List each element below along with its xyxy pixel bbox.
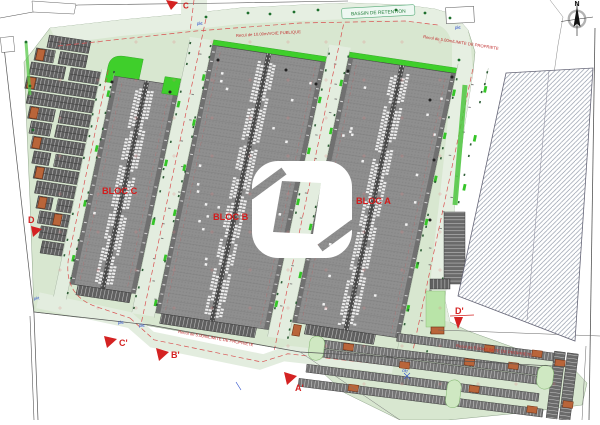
svg-text:BLOC C: BLOC C [102,186,138,196]
svg-text:C: C [183,2,189,11]
svg-text:pkt: pkt [118,320,124,325]
svg-text:D: D [28,215,35,225]
svg-text:B': B' [171,350,180,360]
svg-text:N: N [574,1,579,8]
svg-text:pkt: pkt [197,21,203,26]
svg-text:BLOC A: BLOC A [356,196,391,206]
svg-text:BLOC B: BLOC B [213,212,249,222]
svg-text:A': A' [295,383,304,393]
svg-text:pkt: pkt [455,25,461,30]
svg-text:D': D' [455,306,464,316]
svg-text:pkt: pkt [139,323,145,328]
svg-text:C': C' [119,338,128,348]
